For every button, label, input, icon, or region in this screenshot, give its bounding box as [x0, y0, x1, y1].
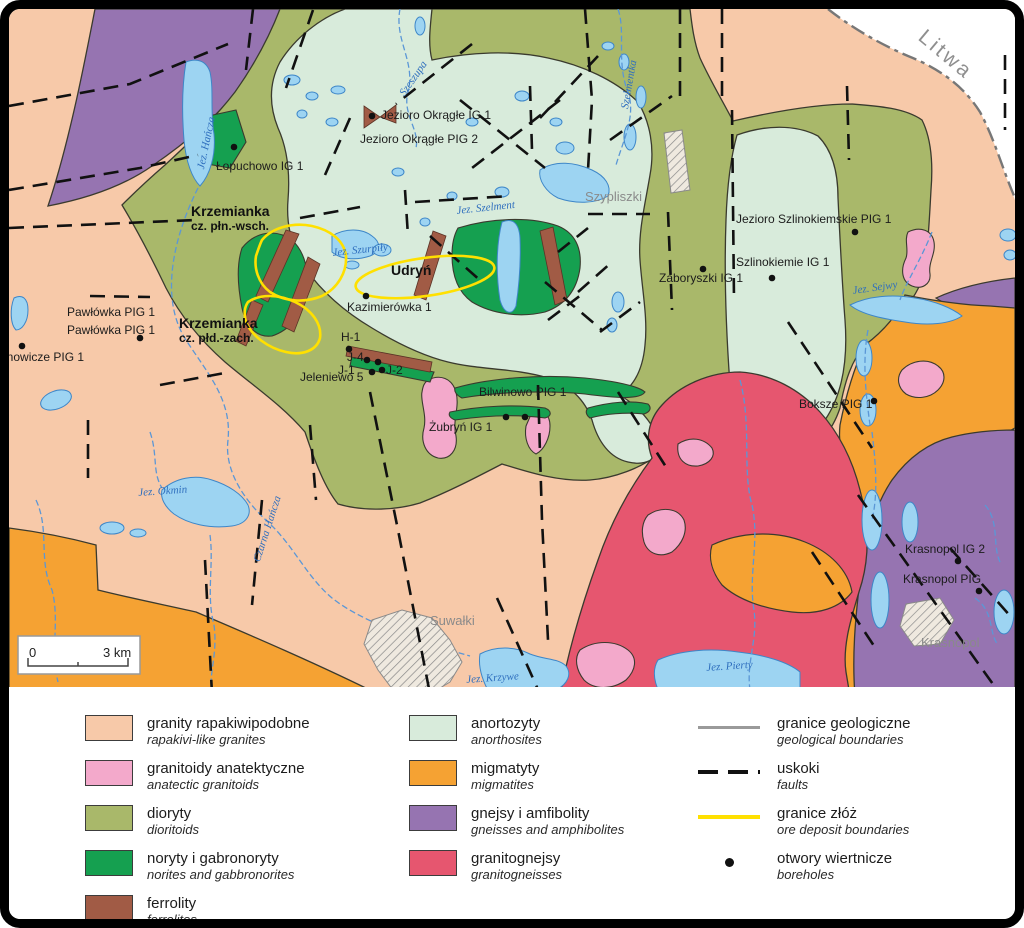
- legend-label-pl: granitoidy anatektyczne: [147, 760, 305, 777]
- borehole-dot: [375, 359, 382, 366]
- map-label-well: H-1: [341, 331, 360, 344]
- map-label-well: Jezioro Okrągłe IG 1: [381, 109, 491, 122]
- map-label-well: Pawłówka PIG 1: [67, 324, 155, 337]
- legend-label-en: ore deposit boundaries: [777, 822, 909, 837]
- map-label-well-bold: Krzemianka: [179, 316, 258, 331]
- legend-label-en: norites and gabbronorites: [147, 867, 294, 882]
- borehole-dot: [363, 293, 370, 300]
- legend-swatch: [85, 760, 133, 786]
- line-dashed-symbol: [697, 760, 761, 784]
- legend-item-rock: gnejsy i amfibolitygneisses and amphibol…: [409, 805, 624, 837]
- map-label-well: Krasnopol IG 2: [905, 543, 985, 556]
- map-legend: granity rapakiwipodobnerapakivi-like gra…: [9, 687, 1015, 919]
- map-label-well: Zaboryszki IG 1: [659, 272, 743, 285]
- legend-label-pl: granitognejsy: [471, 850, 562, 867]
- borehole-dot: [379, 367, 386, 374]
- legend-label-en: granitogneisses: [471, 867, 562, 882]
- legend-item-rock: granity rapakiwipodobnerapakivi-like gra…: [85, 715, 310, 747]
- legend-label-pl: uskoki: [777, 760, 820, 777]
- map-label-well: Krasnopol PIG: [903, 573, 981, 586]
- line-gray-symbol: [697, 715, 761, 739]
- map-area: 0 3 km LitwaSzypliszkiSuwałkiKrasnopolJe…: [9, 9, 1015, 696]
- map-label-town: Suwałki: [430, 614, 475, 628]
- legend-item-symbol: granice złóżore deposit boundaries: [697, 805, 910, 837]
- legend-swatch: [409, 805, 457, 831]
- legend-label-pl: anortozyty: [471, 715, 542, 732]
- map-label-well: Jeleniewo 5: [300, 371, 363, 384]
- map-label-well: Kazimierówka 1: [347, 301, 432, 314]
- map-label-well: J-4: [347, 351, 364, 364]
- map-label-well: Łopuchowo IG 1: [216, 160, 303, 173]
- legend-label-en: gneisses and amphibolites: [471, 822, 624, 837]
- legend-item-rock: noryty i gabronorytynorites and gabbrono…: [85, 850, 310, 882]
- borehole-dot: [369, 113, 376, 120]
- legend-label-pl: otwory wiertnicze: [777, 850, 892, 867]
- legend-swatch: [409, 760, 457, 786]
- legend-label-en: geological boundaries: [777, 732, 910, 747]
- legend-label-en: migmatites: [471, 777, 539, 792]
- legend-label-en: anorthosites: [471, 732, 542, 747]
- legend-swatch: [85, 805, 133, 831]
- map-label-well: Jezioro Okrągłe PIG 2: [360, 133, 478, 146]
- borehole-dot: [522, 414, 529, 421]
- map-label-well: anowicze PIG 1: [0, 351, 84, 364]
- legend-label-pl: gnejsy i amfibolity: [471, 805, 624, 822]
- map-label-well: Pawłówka PIG 1: [67, 306, 155, 319]
- legend-label-en: dioritoids: [147, 822, 199, 837]
- legend-item-rock: anortozytyanorthosites: [409, 715, 624, 747]
- borehole-dot: [231, 144, 238, 151]
- legend-swatch: [85, 715, 133, 741]
- borehole-dot: [976, 588, 983, 595]
- legend-item-rock: ferrolityferrolites: [85, 895, 310, 927]
- borehole-dot: [19, 343, 26, 350]
- map-label-well: Żubryń IG 1: [429, 421, 492, 434]
- legend-swatch: [85, 895, 133, 921]
- legend-column-3: granice geologicznegeological boundaries…: [697, 715, 910, 895]
- borehole-dot: [769, 275, 776, 282]
- map-label-well: Jezioro Szlinokiemskie PIG 1: [736, 213, 891, 226]
- map-label-well: Bilwinowo PIG 1: [479, 386, 566, 399]
- borehole-symbol: [697, 850, 761, 874]
- borehole-dot: [503, 414, 510, 421]
- map-label-town: Krasnopol: [921, 636, 980, 650]
- legend-column-1: granity rapakiwipodobnerapakivi-like gra…: [85, 715, 310, 928]
- line-yellow-symbol: [697, 805, 761, 829]
- legend-item-rock: migmatytymigmatites: [409, 760, 624, 792]
- legend-column-2: anortozytyanorthositesmigmatytymigmatite…: [409, 715, 624, 895]
- legend-label-pl: migmatyty: [471, 760, 539, 777]
- map-label-well-bold-sm: cz. płd.-zach.: [179, 332, 254, 345]
- map-label-well: J-2: [386, 364, 403, 377]
- legend-label-pl: granice geologiczne: [777, 715, 910, 732]
- map-label-well-bold: Udryń: [391, 263, 431, 278]
- legend-item-symbol: granice geologicznegeological boundaries: [697, 715, 910, 747]
- legend-swatch: [409, 850, 457, 876]
- geological-map-figure: 0 3 km LitwaSzypliszkiSuwałkiKrasnopolJe…: [0, 0, 1024, 928]
- geological-map-svg: 0 3 km: [9, 9, 1015, 696]
- legend-item-rock: granitognejsygranitogneisses: [409, 850, 624, 882]
- borehole-dot: [369, 369, 376, 376]
- scale-bar: 0 3 km: [18, 636, 140, 674]
- legend-item-symbol: uskokifaults: [697, 760, 910, 792]
- legend-swatch: [85, 850, 133, 876]
- scale-start: 0: [29, 645, 36, 660]
- legend-label-en: rapakivi-like granites: [147, 732, 310, 747]
- legend-label-pl: noryty i gabronoryty: [147, 850, 294, 867]
- legend-label-en: ferrolites: [147, 912, 197, 927]
- legend-swatch: [409, 715, 457, 741]
- legend-label-pl: granity rapakiwipodobne: [147, 715, 310, 732]
- map-label-town: Szypliszki: [585, 190, 642, 204]
- map-label-well-bold: Krzemianka: [191, 204, 270, 219]
- borehole-dot: [364, 357, 371, 364]
- map-label-well: Boksze PIG 1: [799, 398, 872, 411]
- legend-label-pl: dioryty: [147, 805, 199, 822]
- legend-label-pl: granice złóż: [777, 805, 909, 822]
- legend-label-en: anatectic granitoids: [147, 777, 305, 792]
- map-label-well: Szlinokiemie IG 1: [736, 256, 829, 269]
- legend-item-rock: diorytydioritoids: [85, 805, 310, 837]
- legend-item-rock: granitoidy anatektyczneanatectic granito…: [85, 760, 310, 792]
- legend-item-symbol: otwory wiertniczeboreholes: [697, 850, 910, 882]
- map-label-well-bold-sm: cz. płn.-wsch.: [191, 220, 269, 233]
- scale-end: 3 km: [103, 645, 131, 660]
- legend-label-en: boreholes: [777, 867, 892, 882]
- borehole-dot: [955, 558, 962, 565]
- legend-label-pl: ferrolity: [147, 895, 197, 912]
- borehole-dot: [852, 229, 859, 236]
- legend-label-en: faults: [777, 777, 820, 792]
